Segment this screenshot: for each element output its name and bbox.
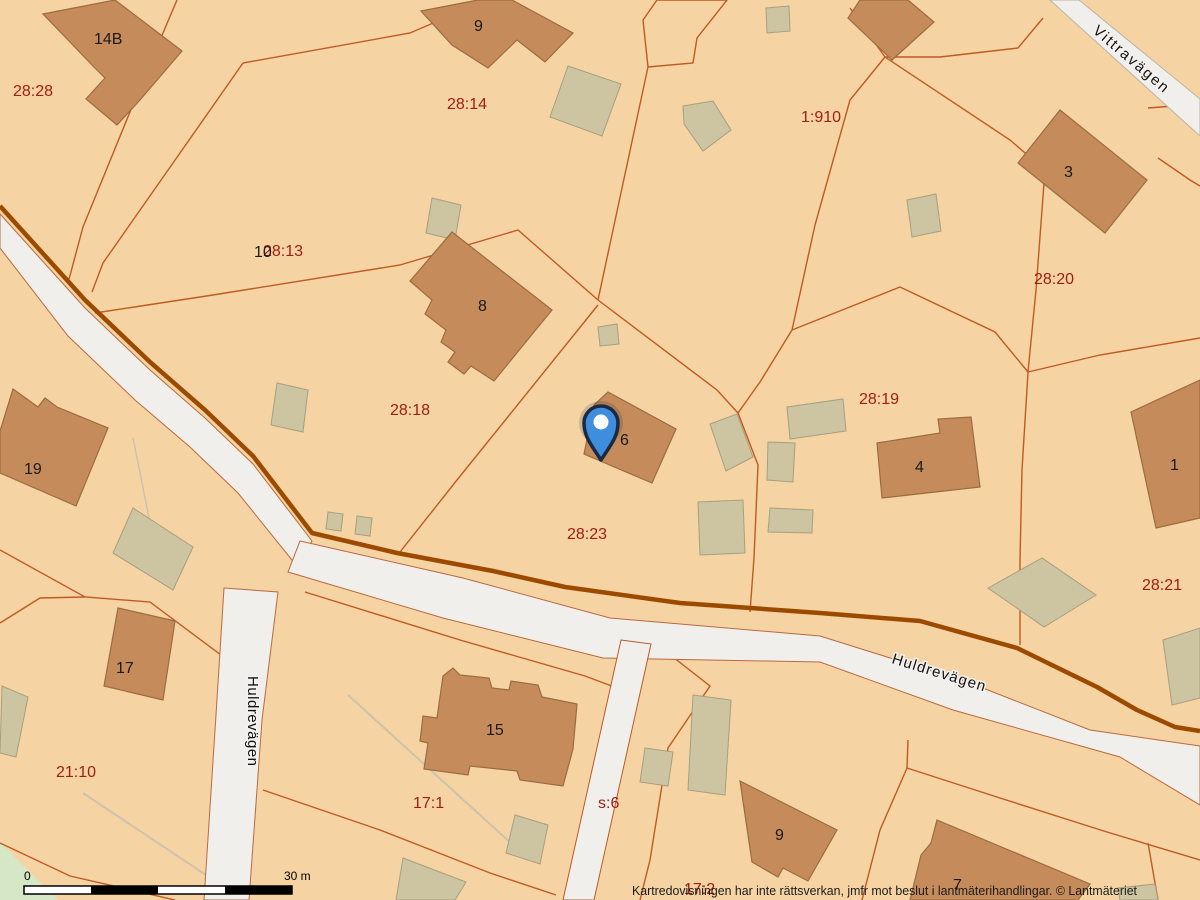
outbuilding [271,383,308,432]
house-number: 19 [24,461,42,478]
street-label-huldrevagen-vertical: Huldrevägen [244,676,261,766]
house-number: 4 [915,459,924,476]
outbuilding [907,194,941,237]
cadastral-map[interactable]: 28:28 28:14 1:910 28:13 28:20 28:18 28:1… [0,0,1200,900]
parcel-label: 28:28 [13,83,53,100]
parcel-label: 28:18 [390,402,430,419]
house-number: 9 [474,18,483,35]
house-number: 15 [486,722,504,739]
outbuilding [688,695,731,795]
parcel-label: s:6 [598,795,619,812]
scale-min-label: 0 [24,869,31,883]
outbuilding [768,508,813,533]
house-number: 10 [254,244,272,261]
outbuilding [426,198,461,240]
outbuilding [640,748,673,786]
house-number: 14B [94,31,122,48]
house-number: 3 [1064,164,1073,181]
outbuilding [598,324,619,346]
attribution-text: Kartredovisningen har inte rättsverkan, … [632,883,1137,898]
outbuilding [698,500,745,555]
scale-max-label: 30 m [284,869,311,883]
parcel-label: 28:20 [1034,271,1074,288]
outbuilding [355,516,372,536]
parcel-label: 28:14 [447,96,487,113]
parcel-label: 1:910 [801,109,841,126]
house-number: 1 [1170,457,1179,474]
house-number: 8 [478,298,487,315]
parcel-label: 17:1 [413,795,444,812]
outbuilding [766,6,790,33]
scale-segment [91,886,158,894]
scale-segment [158,886,225,894]
house-number: 6 [620,432,629,449]
house-number: 17 [116,660,134,677]
outbuilding [326,512,343,531]
house-number: 9 [775,827,784,844]
pin-center-dot [594,415,609,430]
parcel-label: 28:23 [567,526,607,543]
scale-segment [24,886,91,894]
parcel-label: 28:19 [859,391,899,408]
parcel-label: 21:10 [56,764,96,781]
outbuilding [767,442,795,482]
parcel-label: 28:21 [1142,577,1182,594]
map-canvas[interactable]: 28:28 28:14 1:910 28:13 28:20 28:18 28:1… [0,0,1200,900]
scale-segment [225,886,292,894]
